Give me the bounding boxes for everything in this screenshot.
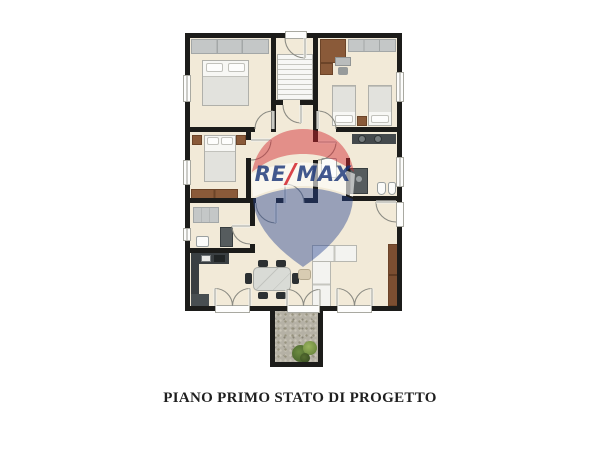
- door-arc: [233, 289, 251, 307]
- floor-plan-figure: RE/MAX PIANO PRIMO STATO DI PROGETTO: [0, 0, 600, 450]
- door-arc: [215, 289, 233, 307]
- remax-wordmark: RE/MAX: [255, 159, 353, 190]
- door-arc: [287, 290, 304, 307]
- door-arc: [337, 289, 355, 307]
- door-arc: [355, 289, 373, 307]
- door-arc: [285, 38, 305, 58]
- remax-text-max: MAX: [297, 162, 353, 186]
- remax-text-re: RE: [255, 162, 287, 186]
- door-arc: [376, 202, 396, 222]
- balloon-blue-bulb: [253, 188, 353, 267]
- door-arc: [304, 290, 321, 307]
- remax-balloon-watermark-icon: RE/MAX: [245, 120, 361, 274]
- plan-caption: PIANO PRIMO STATO DI PROGETTO: [0, 390, 600, 407]
